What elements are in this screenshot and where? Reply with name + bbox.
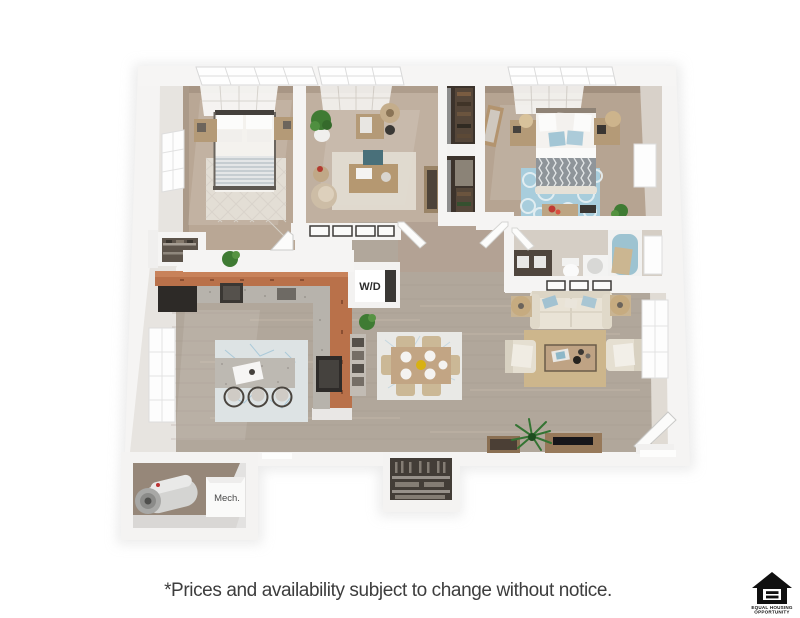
svg-text:Mech.: Mech. — [214, 493, 240, 504]
svg-text:OPPORTUNITY: OPPORTUNITY — [754, 610, 789, 615]
svg-text:W/D: W/D — [359, 281, 380, 293]
